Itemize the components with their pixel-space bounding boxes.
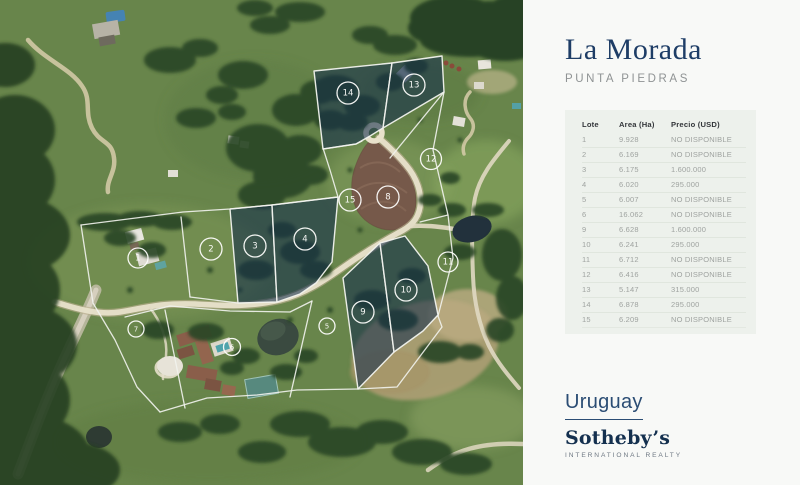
price-cell: NO DISPONIBLE [671, 255, 746, 264]
page-subtitle: PUNTA PIEDRAS [565, 73, 778, 85]
lot-cell: 9 [582, 225, 619, 234]
column-header-precio: Precio (USD) [671, 120, 746, 129]
area-cell: 6.209 [619, 315, 671, 324]
table-header-row: Lote Area (Ha) Precio (USD) [582, 117, 746, 133]
price-cell: 295.000 [671, 180, 746, 189]
area-cell: 9.928 [619, 135, 671, 144]
satellite-map-svg: 123456789101112131415 [0, 0, 523, 485]
price-cell: NO DISPONIBLE [671, 315, 746, 324]
table-row: 146.878295.000 [582, 298, 746, 313]
table-body: 19.928NO DISPONIBLE26.169NO DISPONIBLE36… [582, 133, 746, 328]
price-cell: 315.000 [671, 285, 746, 294]
area-cell: 6.241 [619, 240, 671, 249]
price-cell: 1.600.000 [671, 225, 746, 234]
lot-cell: 1 [582, 135, 619, 144]
lot-marker-label-4: 4 [302, 235, 307, 245]
area-cell: 6.169 [619, 150, 671, 159]
price-cell: NO DISPONIBLE [671, 195, 746, 204]
brand-name: Sotheby’s [565, 427, 778, 449]
lot-marker-label-3: 3 [252, 242, 257, 252]
brand-tagline: INTERNATIONAL REALTY [565, 452, 778, 459]
lot-marker-label-15: 15 [345, 196, 356, 206]
area-cell: 6.020 [619, 180, 671, 189]
table-row: 616.062NO DISPONIBLE [582, 208, 746, 223]
table-row: 19.928NO DISPONIBLE [582, 133, 746, 148]
flyer-page: 123456789101112131415 La Morada PUNTA PI… [0, 0, 800, 485]
table-row: 26.169NO DISPONIBLE [582, 148, 746, 163]
brand-divider [565, 419, 643, 420]
lot-cell: 10 [582, 240, 619, 249]
area-cell: 6.878 [619, 300, 671, 309]
lot-cell: 15 [582, 315, 619, 324]
lot-marker-label-14: 14 [343, 89, 354, 99]
lot-marker-label-2: 2 [208, 245, 213, 255]
brand-country: Uruguay [565, 391, 778, 414]
satellite-map: 123456789101112131415 [0, 0, 523, 485]
column-header-area: Area (Ha) [619, 120, 671, 129]
lot-marker-label-13: 13 [409, 81, 420, 91]
lot-marker-label-8: 8 [385, 193, 390, 203]
table-row: 36.1751.600.000 [582, 163, 746, 178]
info-panel: La Morada PUNTA PIEDRAS Lote Area (Ha) P… [523, 0, 800, 485]
brand-block: Uruguay Sotheby’s INTERNATIONAL REALTY [565, 391, 778, 459]
lot-marker-label-1: 1 [135, 254, 140, 264]
lot-cell: 4 [582, 180, 619, 189]
lot-cell: 11 [582, 255, 619, 264]
lot-cell: 14 [582, 300, 619, 309]
table-row: 156.209NO DISPONIBLE [582, 313, 746, 328]
lot-price-table: Lote Area (Ha) Precio (USD) 19.928NO DIS… [565, 110, 756, 334]
table-row: 135.147315.000 [582, 283, 746, 298]
lot-3-fill [230, 205, 277, 303]
table-row: 126.416NO DISPONIBLE [582, 268, 746, 283]
lot-marker-label-7: 7 [134, 326, 138, 334]
table-row: 96.6281.600.000 [582, 223, 746, 238]
price-cell: 295.000 [671, 240, 746, 249]
price-cell: NO DISPONIBLE [671, 150, 746, 159]
price-cell: NO DISPONIBLE [671, 210, 746, 219]
lot-marker-label-11: 11 [443, 258, 454, 268]
lot-cell: 13 [582, 285, 619, 294]
lot-marker-label-12: 12 [426, 155, 437, 165]
area-cell: 6.175 [619, 165, 671, 174]
area-cell: 5.147 [619, 285, 671, 294]
lot-marker-label-6: 6 [230, 344, 235, 352]
lot-cell: 3 [582, 165, 619, 174]
table-row: 106.241295.000 [582, 238, 746, 253]
table-row: 116.712NO DISPONIBLE [582, 253, 746, 268]
area-cell: 6.712 [619, 255, 671, 264]
table-row: 56.007NO DISPONIBLE [582, 193, 746, 208]
area-cell: 6.628 [619, 225, 671, 234]
area-cell: 16.062 [619, 210, 671, 219]
table-row: 46.020295.000 [582, 178, 746, 193]
price-cell: 1.600.000 [671, 165, 746, 174]
page-title: La Morada [565, 34, 778, 66]
area-cell: 6.416 [619, 270, 671, 279]
column-header-lote: Lote [582, 120, 619, 129]
lot-cell: 2 [582, 150, 619, 159]
lot-marker-label-10: 10 [401, 286, 412, 296]
price-cell: NO DISPONIBLE [671, 135, 746, 144]
price-cell: 295.000 [671, 300, 746, 309]
area-cell: 6.007 [619, 195, 671, 204]
lot-marker-label-9: 9 [360, 308, 365, 318]
lot-marker-label-5: 5 [325, 323, 329, 331]
lot-cell: 12 [582, 270, 619, 279]
lot-cell: 6 [582, 210, 619, 219]
lot-cell: 5 [582, 195, 619, 204]
price-cell: NO DISPONIBLE [671, 270, 746, 279]
